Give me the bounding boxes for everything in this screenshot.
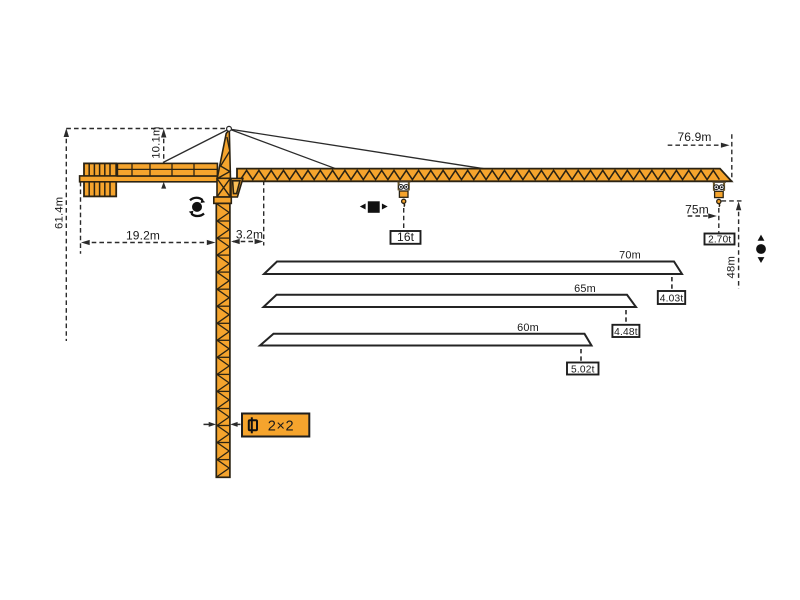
svg-text:3.2m: 3.2m [236,228,263,242]
svg-text:48m: 48m [726,256,738,279]
svg-text:2×2: 2×2 [268,418,295,434]
svg-text:70m: 70m [619,249,641,261]
svg-text:4.03t: 4.03t [660,294,684,305]
svg-text:76.9m: 76.9m [677,130,711,144]
svg-text:65m: 65m [574,283,596,295]
svg-text:2.70t: 2.70t [708,234,731,245]
svg-text:16t: 16t [397,230,415,244]
svg-text:4.48t: 4.48t [614,327,638,338]
svg-text:75m: 75m [685,202,709,216]
svg-text:10.1m: 10.1m [151,126,163,158]
svg-text:19.2m: 19.2m [126,229,160,243]
svg-text:5.02t: 5.02t [571,364,595,375]
svg-text:60m: 60m [517,322,539,334]
svg-text:61.4m: 61.4m [54,197,66,229]
